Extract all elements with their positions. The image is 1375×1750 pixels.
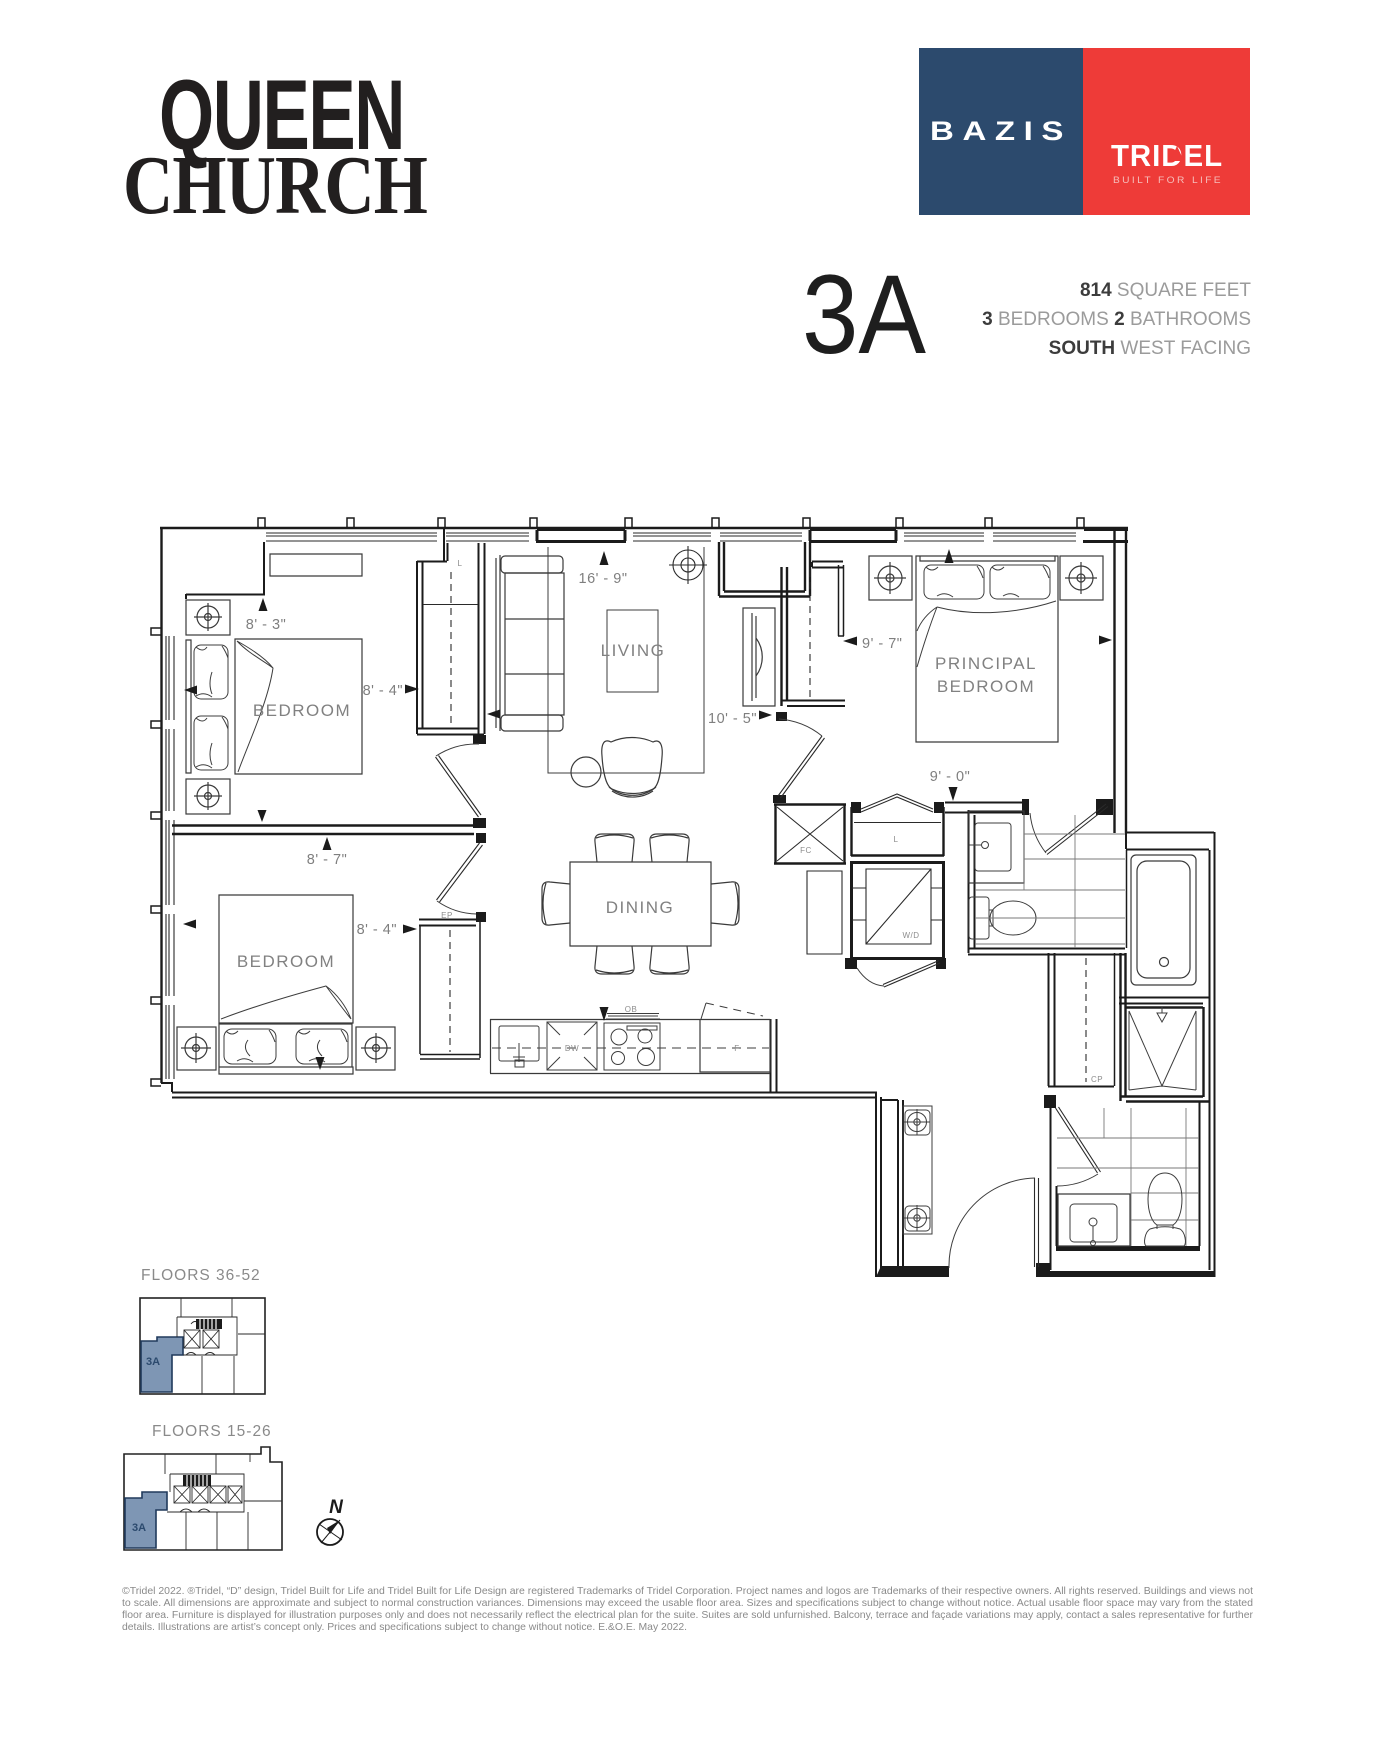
svg-text:BAZIS: BAZIS: [930, 116, 1072, 146]
svg-text:8' - 3": 8' - 3": [246, 617, 286, 633]
svg-text:floor area. Furniture is displ: floor area. Furniture is displayed for i…: [122, 1610, 1254, 1621]
svg-text:FLOORS 15-26: FLOORS 15-26: [152, 1423, 272, 1440]
svg-text:L: L: [894, 835, 899, 844]
svg-text:FC: FC: [800, 846, 812, 855]
svg-text:W/D: W/D: [902, 931, 919, 940]
svg-text:FLOORS 36-52: FLOORS 36-52: [141, 1267, 261, 1284]
svg-text:BEDROOM: BEDROOM: [937, 677, 1035, 696]
svg-text:3 BEDROOMS 2 BATHROOMS: 3 BEDROOMS 2 BATHROOMS: [982, 309, 1251, 330]
svg-text:to scale. All dimensions are a: to scale. All dimensions are approximate…: [122, 1598, 1253, 1609]
svg-text:3A: 3A: [802, 252, 926, 377]
svg-text:DINING: DINING: [606, 898, 675, 917]
svg-text:BUILT FOR LIFE: BUILT FOR LIFE: [1113, 175, 1223, 186]
svg-text:BEDROOM: BEDROOM: [237, 952, 335, 971]
svg-text:8' - 4": 8' - 4": [363, 683, 403, 699]
svg-text:CP: CP: [1091, 1075, 1103, 1084]
svg-text:3A: 3A: [146, 1356, 160, 1368]
svg-text:CHURCH: CHURCH: [123, 139, 427, 232]
svg-text:3A: 3A: [132, 1522, 146, 1534]
svg-text:OB: OB: [625, 1005, 638, 1014]
svg-text:details. Illustrations are art: details. Illustrations are artist’s conc…: [122, 1622, 687, 1633]
svg-text:9' - 0": 9' - 0": [930, 769, 970, 785]
svg-text:SOUTH WEST FACING: SOUTH WEST FACING: [1049, 338, 1251, 359]
svg-text:F: F: [734, 1044, 739, 1053]
svg-text:BEDROOM: BEDROOM: [253, 701, 351, 720]
svg-text:10' - 5": 10' - 5": [708, 711, 757, 727]
svg-text:16' - 9": 16' - 9": [579, 571, 628, 587]
svg-text:LIVING: LIVING: [601, 641, 666, 660]
svg-text:PRINCIPAL: PRINCIPAL: [935, 654, 1037, 673]
svg-text:DW: DW: [565, 1044, 579, 1053]
svg-text:TRIDEL: TRIDEL: [1111, 138, 1223, 173]
svg-text:©Tridel 2022. ®Tridel, “D” des: ©Tridel 2022. ®Tridel, “D” design, Tride…: [122, 1586, 1253, 1597]
svg-text:L: L: [458, 559, 463, 568]
svg-text:EP: EP: [441, 911, 453, 920]
svg-text:814 SQUARE FEET: 814 SQUARE FEET: [1080, 280, 1251, 301]
svg-text:N: N: [329, 1497, 344, 1518]
svg-text:8' - 4": 8' - 4": [357, 922, 397, 938]
svg-text:9' - 7": 9' - 7": [862, 636, 902, 652]
svg-text:8' - 7": 8' - 7": [307, 852, 347, 868]
